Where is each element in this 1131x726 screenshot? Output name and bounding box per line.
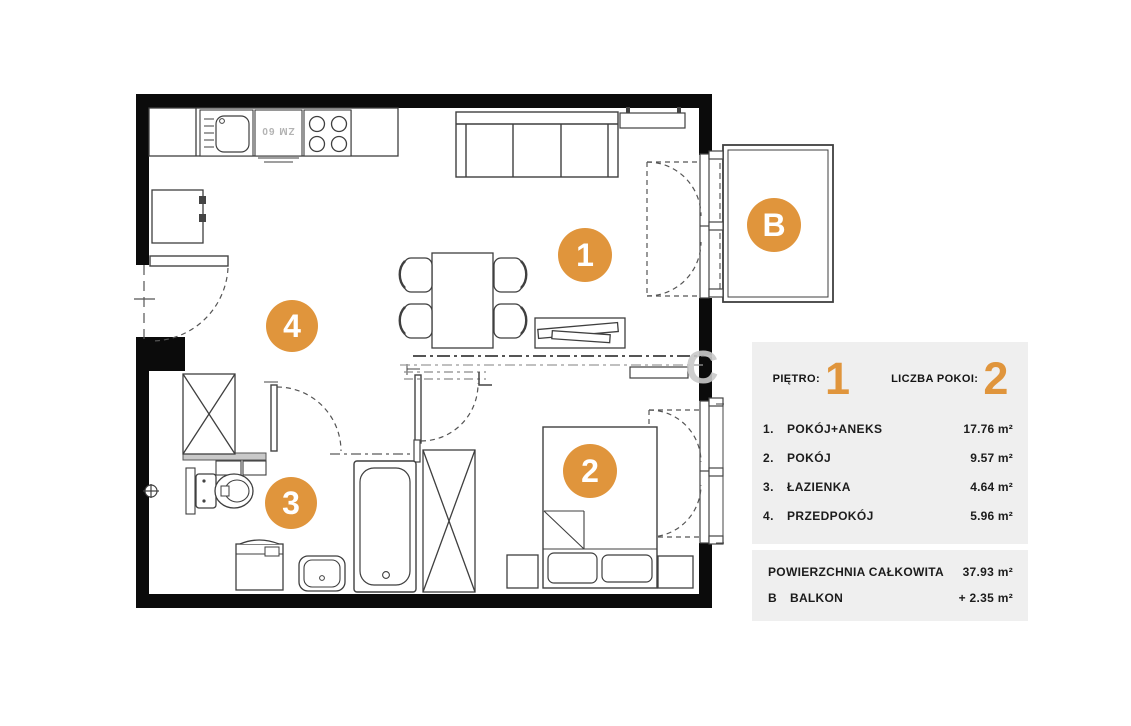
- rooms-list: 1. POKÓJ+ANEKS 17.76 m² 2. POKÓJ 9.57 m²…: [752, 422, 1028, 538]
- cooktop: [304, 110, 351, 156]
- room-markers: 1 2 3 4 B: [265, 198, 801, 529]
- floor-label: PIĘTRO:: [773, 373, 820, 385]
- svg-text:3: 3: [282, 485, 300, 521]
- bathroom-sink: [299, 556, 345, 591]
- bathtub: [354, 461, 416, 592]
- svg-text:4: 4: [283, 308, 301, 344]
- dishwasher: ZM 60: [255, 110, 302, 162]
- marker-living-room: 1: [558, 228, 612, 282]
- toilet: [186, 461, 266, 514]
- room-row: 2. POKÓJ 9.57 m²: [752, 451, 1028, 480]
- watermark-letter: C: [685, 341, 718, 393]
- chair: [494, 304, 526, 338]
- room-area: 4.64 m²: [970, 480, 1013, 494]
- room-area: 17.76 m²: [963, 422, 1013, 436]
- washing-machine: [236, 540, 283, 590]
- room-area: 5.96 m²: [970, 509, 1013, 523]
- svg-text:B: B: [762, 207, 785, 243]
- total-area-value: 37.93 m²: [963, 565, 1013, 579]
- total-area-label: POWIERZCHNIA CAŁKOWITA: [768, 565, 963, 579]
- total-area-row: POWIERZCHNIA CAŁKOWITA 37.93 m²: [752, 559, 1028, 585]
- balcony-label: BALKON: [790, 591, 959, 605]
- room-area: 9.57 m²: [970, 451, 1013, 465]
- balcony-value: + 2.35 m²: [959, 591, 1013, 605]
- marker-hallway: 4: [266, 300, 318, 352]
- room-number: 1.: [763, 422, 787, 436]
- room-row: 1. POKÓJ+ANEKS 17.76 m²: [752, 422, 1028, 451]
- dishwasher-label: ZM 60: [261, 125, 294, 136]
- room-row: 3. ŁAZIENKA 4.64 m²: [752, 480, 1028, 509]
- room-name: POKÓJ: [787, 451, 970, 465]
- svg-text:2: 2: [581, 453, 599, 489]
- info-panel-main: PIĘTRO: 1 LICZBA POKOI: 2 1. POKÓJ+ANEKS…: [752, 342, 1028, 544]
- floor-indicator: PIĘTRO: 1: [773, 359, 849, 399]
- dining-table-set: [400, 253, 527, 348]
- tv-bench: [535, 318, 625, 348]
- panel-header: PIĘTRO: 1 LICZBA POKOI: 2: [752, 342, 1028, 406]
- svg-text:1: 1: [576, 237, 594, 273]
- rooms-count-label: LICZBA POKOI:: [891, 373, 978, 385]
- rooms-count-value: 2: [983, 359, 1007, 399]
- room-name: PRZEDPOKÓJ: [787, 509, 970, 523]
- marker-balcony: B: [747, 198, 801, 252]
- balcony-prefix: B: [768, 591, 790, 605]
- marker-bedroom: 2: [563, 444, 617, 498]
- bedroom-french-window: [700, 398, 724, 544]
- shaft-cabinet: [183, 374, 235, 454]
- radiator-living: [620, 107, 685, 128]
- chair: [494, 258, 526, 292]
- wardrobe: [423, 450, 475, 592]
- room-number: 4.: [763, 509, 787, 523]
- room-number: 3.: [763, 480, 787, 494]
- kitchen-counter: ZM 60: [149, 108, 398, 162]
- info-panel-totals: POWIERZCHNIA CAŁKOWITA 37.93 m² B BALKON…: [752, 550, 1028, 621]
- room-number: 2.: [763, 451, 787, 465]
- info-panel: PIĘTRO: 1 LICZBA POKOI: 2 1. POKÓJ+ANEKS…: [752, 342, 1028, 621]
- floor-value: 1: [825, 359, 849, 399]
- room-name: ŁAZIENKA: [787, 480, 970, 494]
- radiator-bedroom: [630, 367, 688, 378]
- kitchen-sink: [200, 110, 253, 156]
- fridge: [152, 190, 206, 243]
- floorplan-page: { "colors": { "accent": "#E0953C", "wall…: [0, 0, 1131, 726]
- chair: [400, 258, 432, 292]
- chair: [400, 304, 432, 338]
- rooms-count-indicator: LICZBA POKOI: 2: [891, 359, 1007, 399]
- balcony-area-row: B BALKON + 2.35 m²: [752, 585, 1028, 611]
- room-name: POKÓJ+ANEKS: [787, 422, 963, 436]
- sofa: [456, 112, 618, 177]
- room-row: 4. PRZEDPOKÓJ 5.96 m²: [752, 509, 1028, 538]
- marker-bathroom: 3: [265, 477, 317, 529]
